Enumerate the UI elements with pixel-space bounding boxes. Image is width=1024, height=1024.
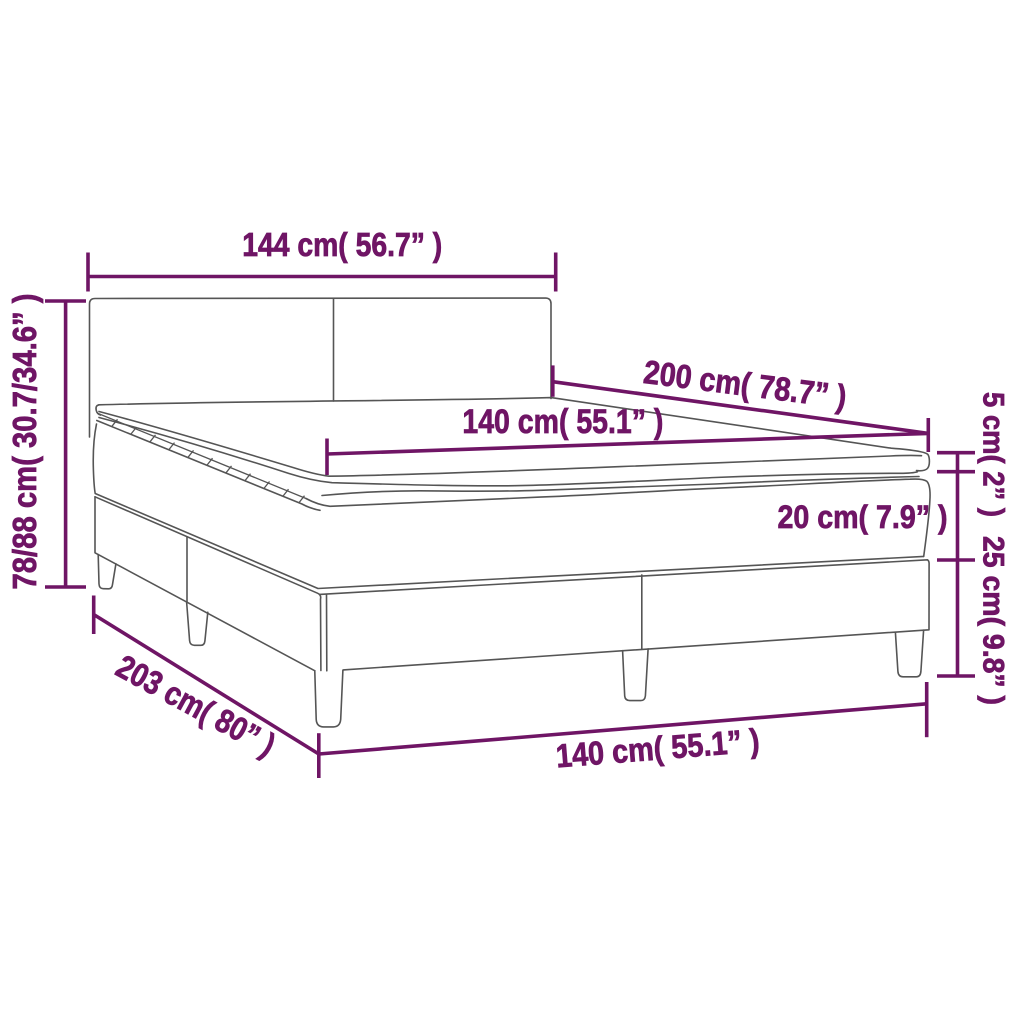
svg-text:5 cm( 2” ): 5 cm( 2” )	[977, 392, 1010, 517]
svg-text:140 cm( 55.1” ): 140 cm( 55.1” )	[462, 403, 663, 441]
svg-text:144 cm( 56.7” ): 144 cm( 56.7” )	[242, 226, 442, 263]
svg-text:20 cm( 7.9” ): 20 cm( 7.9” )	[778, 499, 948, 535]
svg-text:78/88 cm( 30.7/34.6” ): 78/88 cm( 30.7/34.6” )	[6, 294, 43, 590]
svg-text:25 cm( 9.8” ): 25 cm( 9.8” )	[977, 536, 1010, 705]
